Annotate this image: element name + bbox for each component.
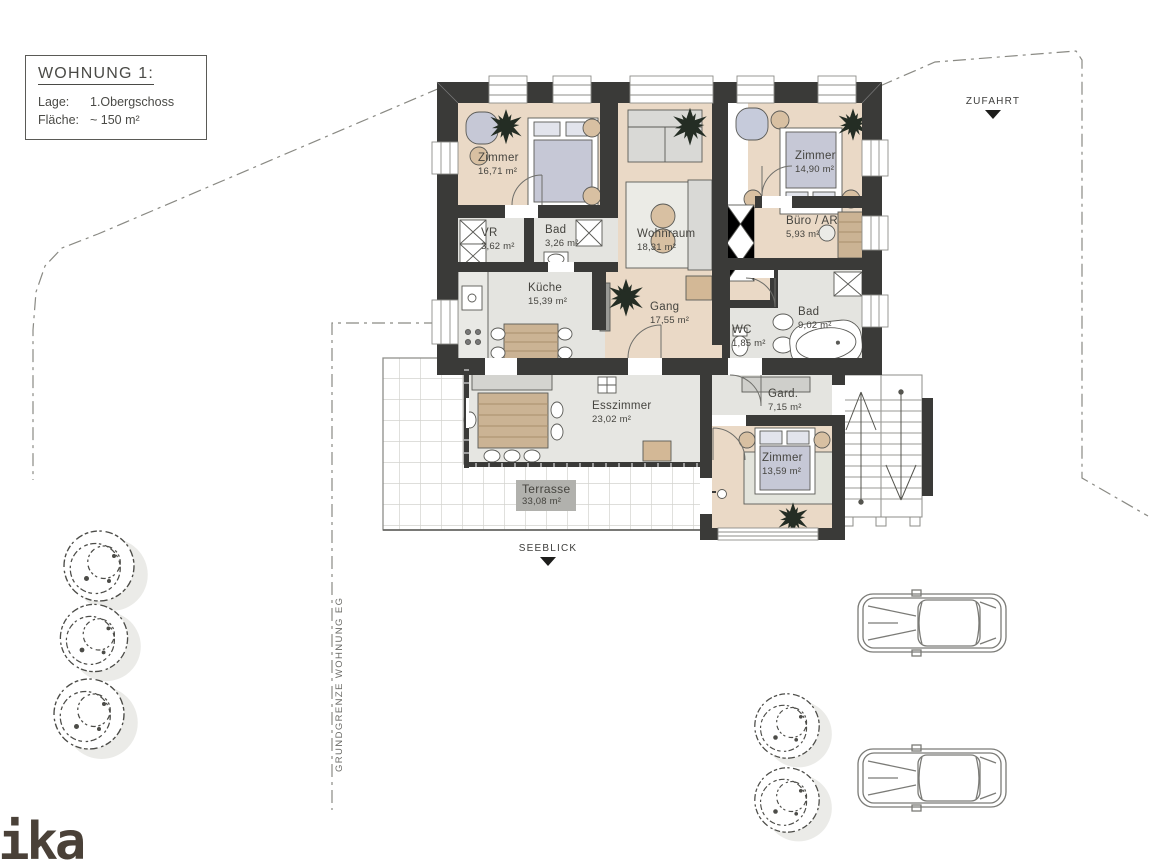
seeblick-arrow-icon (540, 557, 556, 566)
grundgrenze-annotation: GRUNDGRENZE WOHNUNG EG (334, 597, 345, 772)
zufahrt-arrow-icon (985, 110, 1001, 119)
architect-logo: mika (0, 812, 83, 864)
zufahrt-annotation: ZUFAHRT (953, 96, 1033, 119)
trees (54, 531, 832, 841)
parked-cars (858, 590, 1006, 811)
apartment-info-box: WOHNUNG 1: Lage: 1.Obergschoss Fläche: ~… (25, 55, 207, 140)
floor-plan-page: WOHNUNG 1: Lage: 1.Obergschoss Fläche: ~… (0, 0, 1152, 864)
info-row-flaeche: Fläche: ~ 150 m² (38, 111, 196, 129)
exterior-staircase (840, 375, 933, 526)
apartment-title: WOHNUNG 1: (38, 65, 154, 85)
seeblick-annotation: SEEBLICK (508, 543, 588, 566)
info-row-lage: Lage: 1.Obergschoss (38, 93, 196, 111)
